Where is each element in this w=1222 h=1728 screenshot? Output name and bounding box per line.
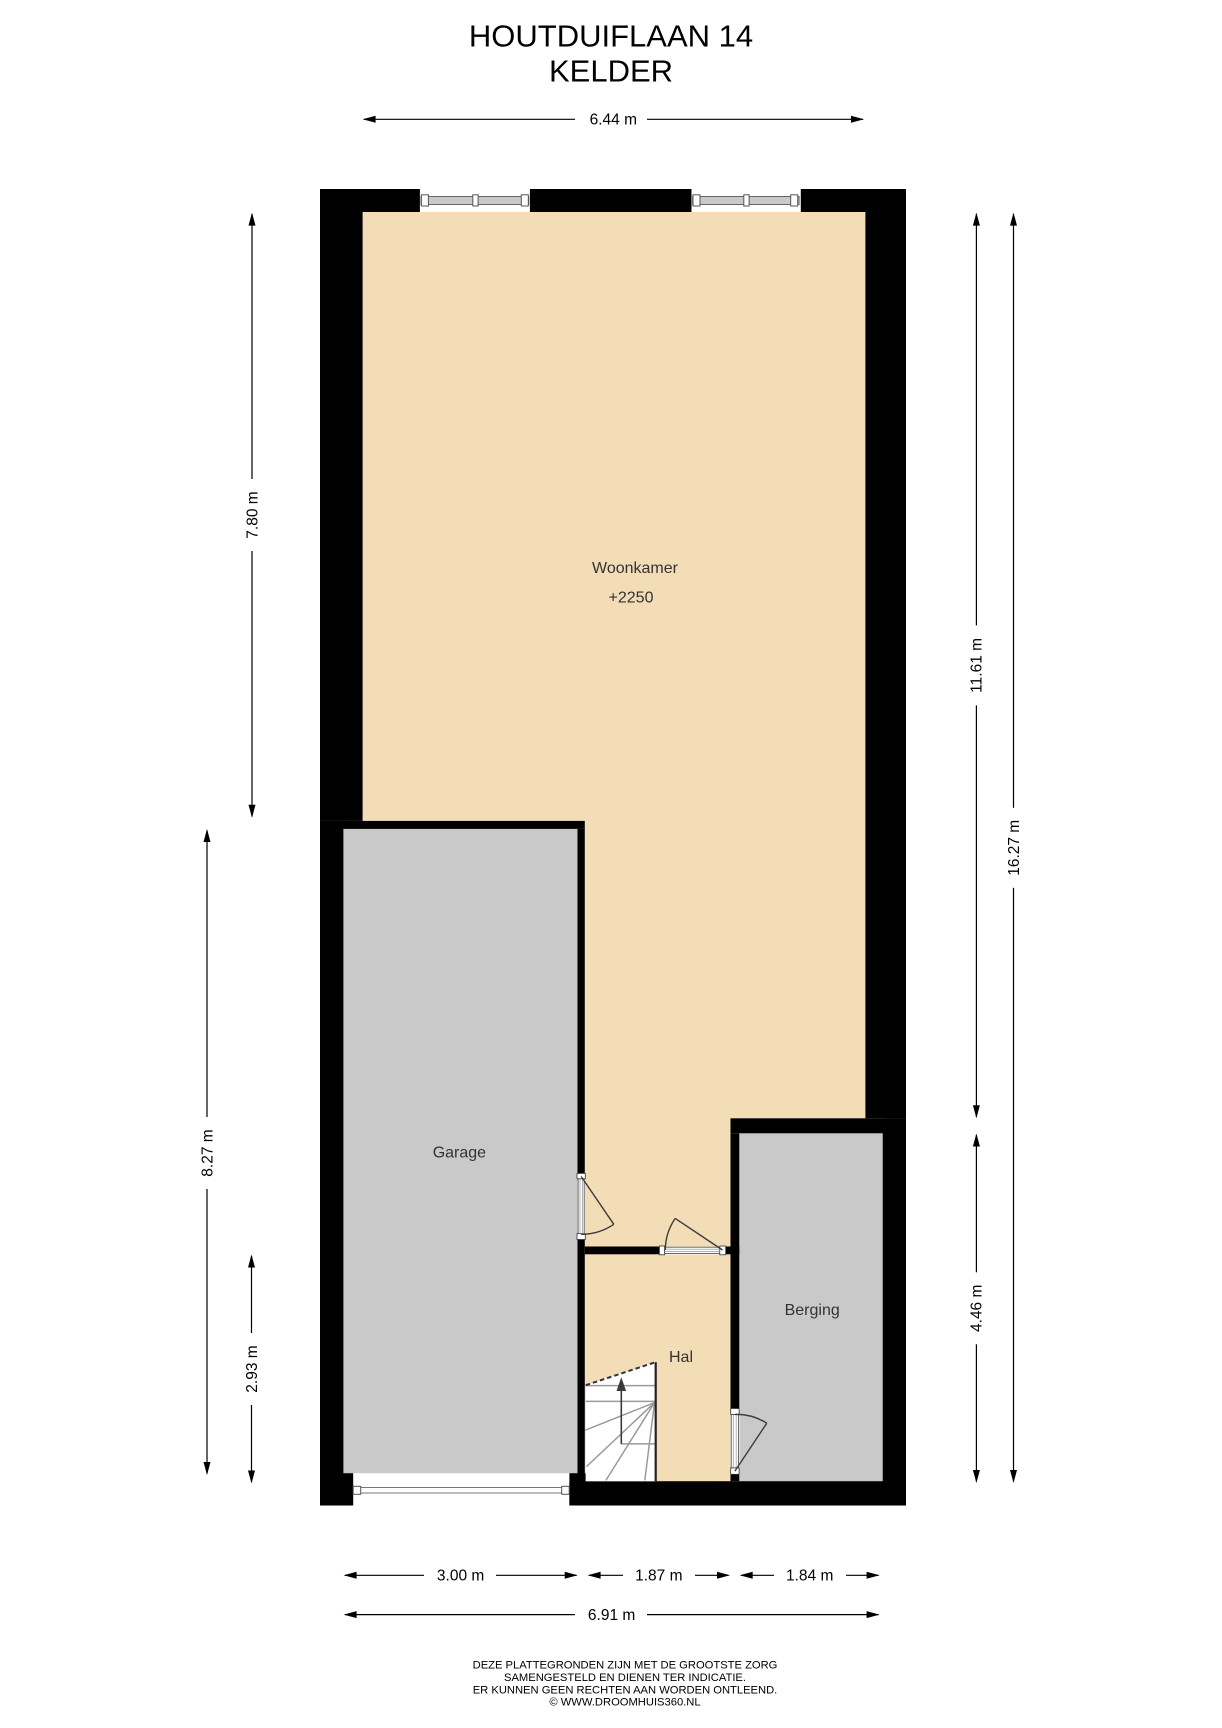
svg-text:6.44 m: 6.44 m	[590, 112, 637, 129]
svg-text:16.27 m: 16.27 m	[1006, 820, 1023, 876]
svg-text:1.84 m: 1.84 m	[786, 1568, 833, 1585]
svg-text:Woonkamer: Woonkamer	[592, 560, 679, 577]
svg-text:Garage: Garage	[433, 1145, 486, 1162]
svg-text:1.87 m: 1.87 m	[635, 1568, 682, 1585]
svg-text:© WWW.DROOMHUIS360.NL: © WWW.DROOMHUIS360.NL	[549, 1697, 700, 1709]
svg-text:KELDER: KELDER	[549, 53, 673, 88]
svg-text:11.61 m: 11.61 m	[969, 638, 986, 693]
svg-text:7.80 m: 7.80 m	[244, 491, 261, 538]
svg-text:2.93 m: 2.93 m	[244, 1345, 261, 1392]
svg-text:8.27 m: 8.27 m	[199, 1129, 216, 1176]
svg-text:3.00 m: 3.00 m	[437, 1568, 484, 1585]
svg-text:Berging: Berging	[785, 1302, 840, 1319]
svg-text:ER KUNNEN GEEN RECHTEN AAN WOR: ER KUNNEN GEEN RECHTEN AAN WORDEN ONTLEE…	[473, 1685, 778, 1697]
svg-text:HOUTDUIFLAAN 14: HOUTDUIFLAAN 14	[469, 18, 753, 53]
svg-text:+2250: +2250	[609, 590, 654, 607]
svg-text:6.91 m: 6.91 m	[588, 1607, 635, 1624]
svg-text:Hal: Hal	[669, 1349, 693, 1366]
svg-text:DEZE PLATTEGRONDEN ZIJN MET DE: DEZE PLATTEGRONDEN ZIJN MET DE GROOTSTE …	[473, 1660, 778, 1672]
svg-text:SAMENGESTELD EN DIENEN TER IND: SAMENGESTELD EN DIENEN TER INDICATIE.	[504, 1672, 746, 1684]
svg-text:4.46 m: 4.46 m	[969, 1285, 986, 1332]
